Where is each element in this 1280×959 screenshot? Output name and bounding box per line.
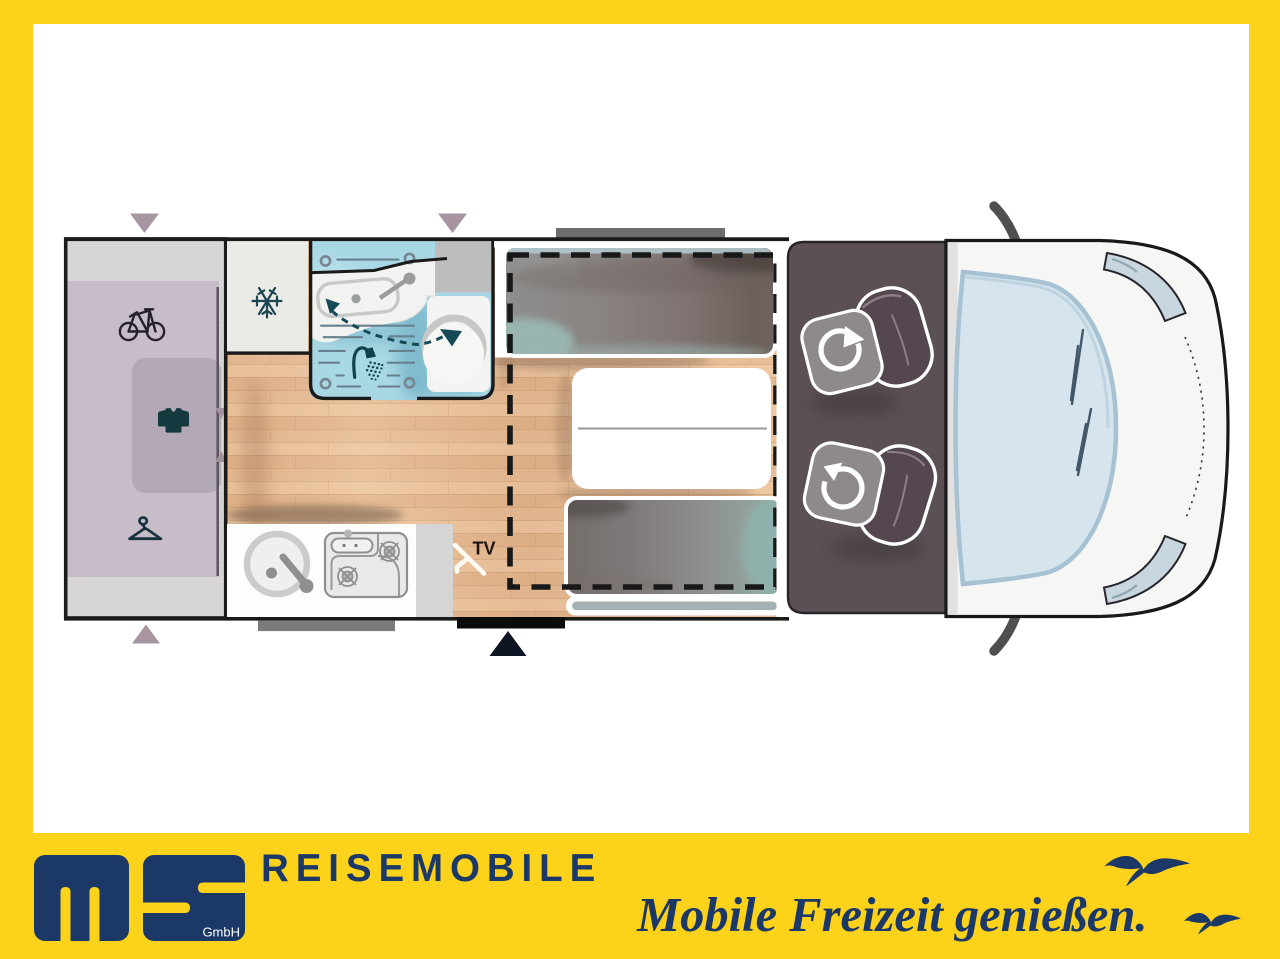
svg-text:GmbH: GmbH: [202, 925, 240, 940]
svg-text:Mobile Freizeit genießen.: Mobile Freizeit genießen.: [636, 889, 1148, 942]
svg-text:TV: TV: [473, 539, 496, 559]
svg-text:REISEMOBILE: REISEMOBILE: [261, 847, 602, 890]
